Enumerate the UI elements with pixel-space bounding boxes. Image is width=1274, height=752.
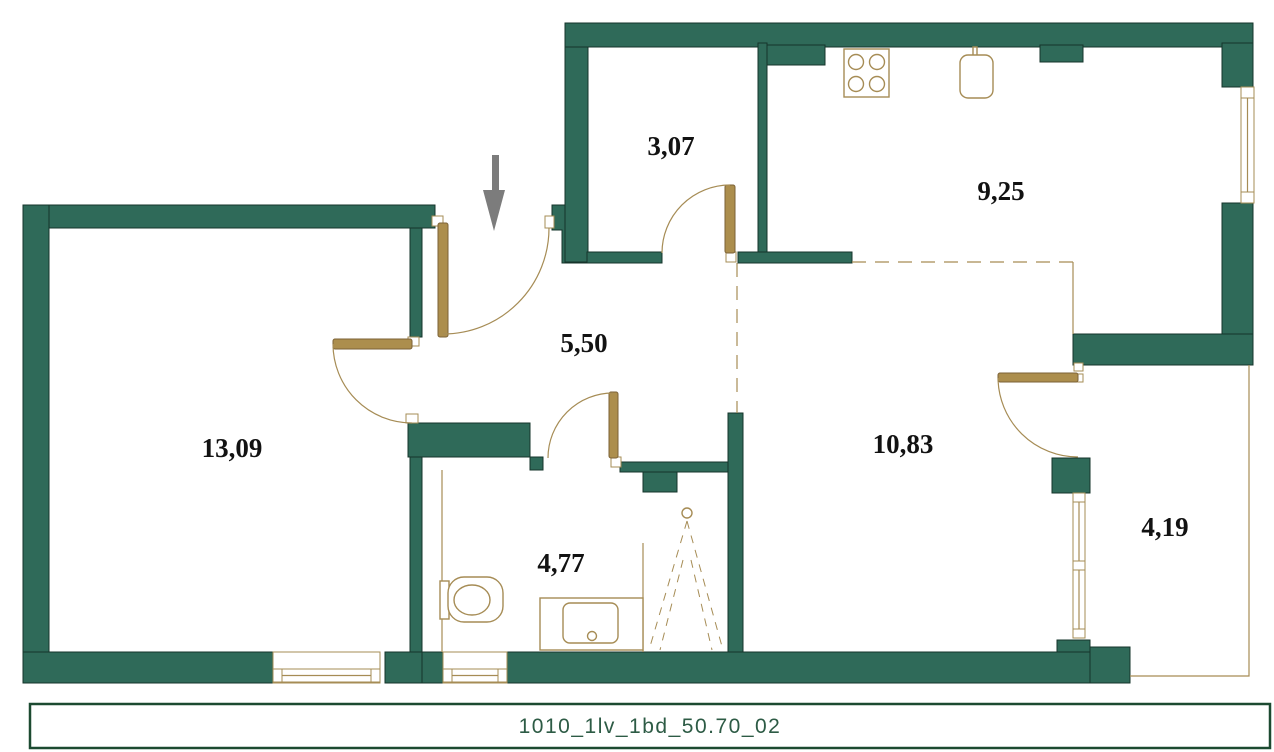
wall-segment — [1090, 647, 1130, 683]
door-swing-arc — [333, 344, 412, 423]
window-living-room — [273, 652, 380, 683]
room-area-label-bathroom: 4,77 — [537, 548, 584, 578]
shower-spray-line — [687, 521, 723, 650]
floor-plan-page: 3,07 9,25 5,50 13,09 10,83 4,77 4,19 101… — [0, 0, 1274, 752]
floor-plan-drawing: 3,07 9,25 5,50 13,09 10,83 4,77 4,19 101… — [0, 0, 1274, 752]
window-cap — [1073, 493, 1085, 502]
wall-segment — [1052, 458, 1090, 493]
window-cap — [1073, 561, 1085, 570]
shower-spray-line — [649, 521, 687, 650]
door-hinge — [545, 216, 554, 228]
entry-door — [432, 216, 554, 337]
wall-segment — [23, 652, 273, 683]
washbasin-drain — [588, 632, 597, 641]
door-swing-arc — [443, 228, 549, 334]
window-cap — [273, 669, 282, 682]
shower-icon — [649, 508, 723, 650]
wall-segment — [565, 23, 588, 262]
kitchen-sink-bowl — [960, 55, 993, 98]
shower-spray-line — [691, 560, 712, 650]
wall-segment — [23, 205, 49, 683]
door-hinge — [406, 414, 418, 423]
window-bathroom — [443, 652, 507, 683]
door-swing-arc — [998, 378, 1078, 457]
arrow-head — [483, 190, 505, 231]
wall-segment — [1057, 640, 1090, 652]
door-leaf — [725, 185, 735, 253]
door-hinge — [1074, 363, 1083, 371]
kitchen-sink-icon — [960, 47, 993, 98]
wall-segment — [587, 252, 662, 263]
stove-burner — [870, 77, 885, 92]
title-block: 1010_1lv_1bd_50.70_02 — [30, 704, 1270, 748]
window-kitchen — [1241, 87, 1254, 203]
arrow-shaft — [492, 155, 499, 192]
toilet-seat — [454, 585, 490, 615]
wall-segment — [738, 252, 852, 263]
entrance-arrow-icon — [483, 155, 505, 231]
wall-segment — [728, 413, 743, 652]
door-swing-arc — [662, 185, 730, 253]
stove-burner — [849, 77, 864, 92]
stove-icon — [844, 49, 889, 97]
window-cap — [1073, 629, 1085, 638]
room-area-label-hallway: 5,50 — [560, 328, 607, 358]
room-area-label-living-room: 13,09 — [202, 433, 263, 463]
wall-segment — [23, 205, 435, 228]
wall-segment — [1222, 43, 1253, 87]
wall-segment — [758, 43, 767, 262]
wall-segment — [565, 23, 1253, 47]
window-cap — [443, 669, 452, 682]
door-swing-arc — [548, 393, 613, 458]
wall-segment — [620, 462, 728, 472]
shower-spray-line — [660, 560, 683, 650]
stove-burner — [849, 55, 864, 70]
room-area-label-storage: 3,07 — [647, 131, 694, 161]
door-leaf — [998, 373, 1078, 382]
wall-segment — [507, 652, 1090, 683]
door-leaf — [333, 339, 412, 349]
wall-segment — [408, 423, 530, 457]
washbasin-icon — [540, 598, 643, 650]
wall-segment — [410, 228, 422, 337]
wall-segment — [1073, 334, 1253, 365]
walls — [23, 23, 1253, 683]
area-dividers — [737, 262, 1073, 413]
wall-segment — [767, 45, 825, 65]
wall-segment — [1040, 45, 1083, 62]
room-area-label-kitchen: 9,25 — [977, 176, 1024, 206]
toilet-icon — [440, 577, 503, 622]
door-leaf — [438, 223, 448, 337]
balcony-door — [998, 363, 1083, 457]
room-labels: 3,07 9,25 5,50 13,09 10,83 4,77 4,19 — [202, 131, 1189, 578]
window-cap — [1241, 192, 1254, 203]
window-bedroom-balcony — [1073, 493, 1085, 638]
plan-title: 1010_1lv_1bd_50.70_02 — [519, 715, 782, 738]
living-room-door — [333, 337, 419, 423]
door-leaf — [609, 392, 618, 458]
room-area-label-bedroom: 10,83 — [873, 429, 934, 459]
wall-segment — [643, 472, 677, 492]
window-cap — [1241, 87, 1254, 98]
room-area-label-balcony: 4,19 — [1141, 512, 1188, 542]
window-cap — [371, 669, 380, 682]
wall-segment — [410, 424, 422, 652]
stove-burner — [870, 55, 885, 70]
shower-head — [682, 508, 692, 518]
storage-door — [662, 185, 736, 262]
wall-segment — [422, 652, 443, 683]
wall-segment — [530, 457, 543, 470]
bathroom-door — [548, 392, 621, 467]
window-cap — [498, 669, 507, 682]
